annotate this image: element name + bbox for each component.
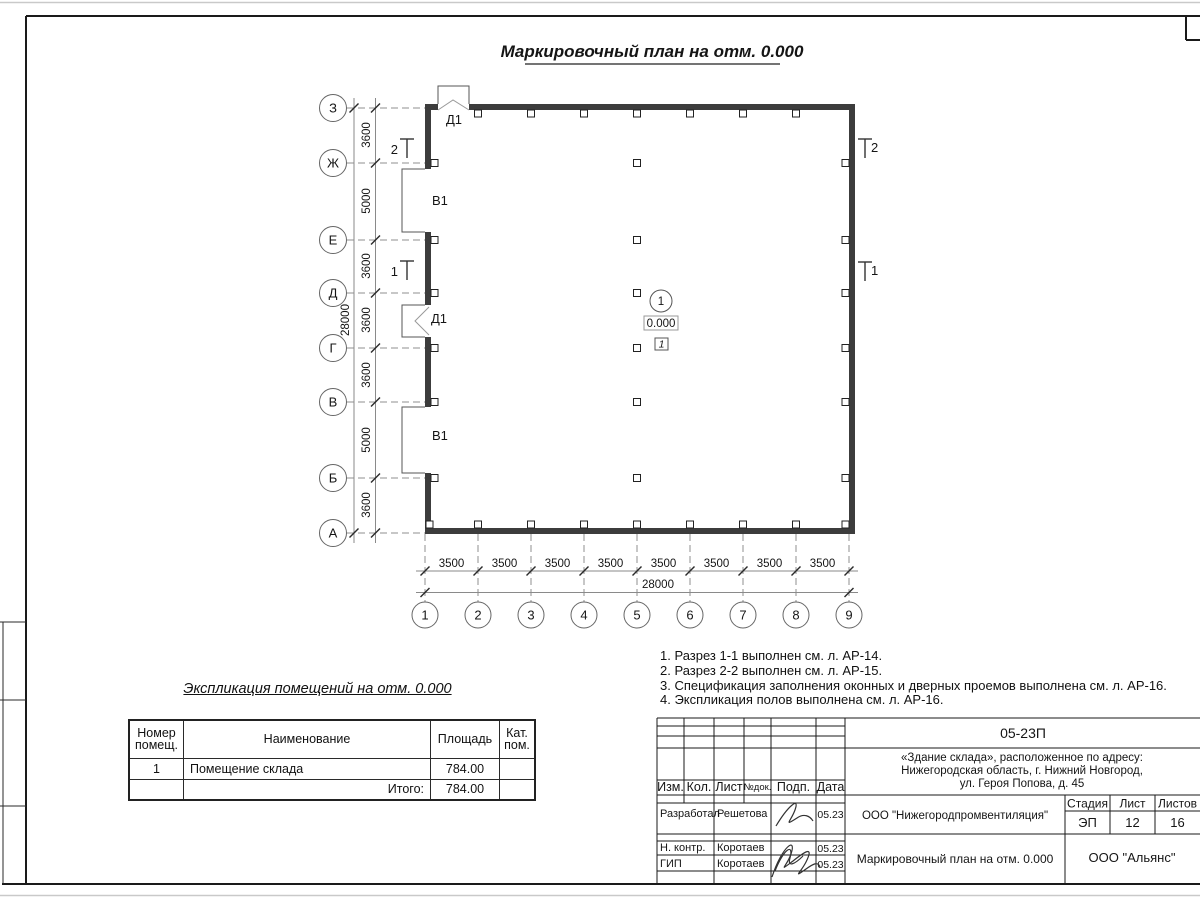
note-line: 4. Экспликация полов выполнена см. л. АР… — [660, 693, 1190, 708]
doc-title: Маркировочный план на отм. 0.000 — [857, 852, 1054, 866]
dim-value: 5000 — [361, 188, 373, 214]
dim-value: 3500 — [810, 558, 836, 570]
door-canopy — [438, 86, 469, 104]
col-header: Подп. — [777, 780, 810, 794]
axis-label: В — [329, 395, 338, 410]
room-number: 1 — [658, 296, 664, 308]
note-line: 3. Спецификация заполнения оконных и две… — [660, 679, 1190, 694]
plan-title: Маркировочный план на отм. 0.000 — [501, 42, 804, 61]
axis-label: Б — [329, 471, 338, 486]
door-label: Д1 — [446, 112, 462, 127]
dim-value: 3500 — [598, 558, 624, 570]
explication-header: Наименование — [184, 720, 431, 758]
axis-label: 3 — [527, 608, 534, 623]
axis-label: 6 — [686, 608, 693, 623]
door-label: Д1 — [431, 311, 447, 326]
walls — [425, 104, 855, 534]
axis-label: 9 — [845, 608, 852, 623]
name: Коротаев — [717, 858, 765, 870]
signatures — [772, 803, 820, 877]
date: 05.23 — [817, 843, 843, 855]
col-header: №док. — [744, 782, 772, 793]
dim-total-bottom: 28000 — [642, 579, 674, 591]
role: Н. контр. — [660, 842, 705, 854]
sheets-value: 16 — [1170, 815, 1184, 830]
axis-lines — [347, 108, 849, 602]
total-label: Итого: — [184, 779, 431, 800]
elevation-value: 0.000 — [647, 318, 676, 330]
object-address: «Здание склада», расположенное по адресу… — [901, 752, 1143, 764]
sheet-value: 12 — [1125, 815, 1139, 830]
sheets-label: Листов — [1158, 797, 1197, 811]
door-opening — [402, 305, 425, 337]
table-row: 1 Помещение склада 784.00 — [129, 758, 535, 779]
explication-title: Экспликация помещений на отм. 0.000 — [128, 681, 507, 697]
window-label: В1 — [432, 193, 448, 208]
left-margin-stamp — [0, 622, 26, 884]
dim-value: 3600 — [361, 362, 373, 388]
section-mark-label: 2 — [871, 140, 878, 155]
dim-value: 3600 — [361, 253, 373, 279]
col-header: Кол. — [687, 780, 712, 794]
window-label: В1 — [432, 428, 448, 443]
dim-value: 5000 — [361, 427, 373, 453]
dim-value: 3500 — [439, 558, 465, 570]
dim-value: 3500 — [545, 558, 571, 570]
name: Решетова — [717, 808, 768, 820]
window-opening — [402, 407, 425, 473]
col-header: Дата — [817, 780, 845, 794]
axis-label: Г — [329, 341, 336, 356]
explication-header: Номер помещ. — [129, 720, 184, 758]
dim-value: 3500 — [704, 558, 730, 570]
role: Разработал — [660, 808, 720, 820]
dim-total-left: 28000 — [340, 304, 352, 336]
axis-label: Е — [329, 233, 338, 248]
window-opening — [402, 169, 425, 232]
date: 05.23 — [817, 809, 843, 821]
table-total-row: Итого: 784.00 — [129, 779, 535, 800]
col-header: Лист — [715, 780, 742, 794]
dim-value: 3600 — [361, 122, 373, 148]
axis-label: 7 — [739, 608, 746, 623]
room-name-cell: Помещение склада — [184, 758, 431, 779]
project-code: 05-23П — [1000, 725, 1046, 741]
dim-value: 3500 — [651, 558, 677, 570]
col-header: Изм. — [657, 780, 684, 794]
dim-value: 3500 — [492, 558, 518, 570]
dim-value: 3600 — [361, 492, 373, 518]
org-name: ООО "Нижегородпромвентиляция" — [862, 810, 1048, 822]
axis-label: 8 — [792, 608, 799, 623]
signature — [775, 849, 803, 871]
object-address: ул. Героя Попова, д. 45 — [960, 778, 1085, 790]
notes: 1. Разрез 1-1 выполнен см. л. АР-14. 2. … — [660, 649, 1190, 708]
door-swing-mark — [415, 307, 429, 335]
note-line: 1. Разрез 1-1 выполнен см. л. АР-14. — [660, 649, 1190, 664]
axis-label: 1 — [421, 608, 428, 623]
room-number-cell: 1 — [129, 758, 184, 779]
section-mark-label: 1 — [391, 264, 398, 279]
explication-header: Кат. пом. — [500, 720, 536, 758]
section-mark-label: 1 — [871, 263, 878, 278]
axis-label: 4 — [580, 608, 587, 623]
name: Коротаев — [717, 842, 765, 854]
axis-label: Ж — [327, 156, 339, 171]
floor-type: 1 — [659, 339, 665, 351]
door-swing-mark — [438, 100, 469, 110]
room-cat-cell — [500, 758, 536, 779]
dim-value: 3600 — [361, 307, 373, 333]
room-area-cell: 784.00 — [431, 758, 500, 779]
signature — [776, 803, 813, 826]
role: ГИП — [660, 858, 682, 870]
company-name: ООО "Альянс" — [1089, 850, 1176, 865]
axis-label: Д — [329, 286, 338, 301]
sheet-label: Лист — [1119, 797, 1146, 811]
axis-label: А — [329, 526, 338, 541]
date: 05.23 — [817, 859, 843, 871]
openings — [402, 86, 469, 473]
dims-left-chain: 3600 5000 3600 3600 3600 5000 3600 28000 — [340, 122, 373, 518]
dim-value: 3500 — [757, 558, 783, 570]
total-value: 784.00 — [431, 779, 500, 800]
stage-label: Стадия — [1067, 797, 1108, 811]
pilasters — [426, 110, 849, 528]
section-mark-label: 2 — [391, 142, 398, 157]
note-line: 2. Разрез 2-2 выполнен см. л. АР-15. — [660, 664, 1190, 679]
axis-label: 5 — [633, 608, 640, 623]
stage-value: ЭП — [1078, 815, 1097, 830]
object-address: Нижегородская область, г. Нижний Новгоро… — [901, 765, 1143, 777]
explication-table: Номер помещ. Наименование Площадь Кат. п… — [128, 719, 536, 801]
axis-label: З — [329, 101, 337, 116]
title-block-texts: Изм. Кол. Лист №док. Подп. Дата Разработ… — [657, 725, 1197, 871]
explication-header: Площадь — [431, 720, 500, 758]
axis-label: 2 — [474, 608, 481, 623]
